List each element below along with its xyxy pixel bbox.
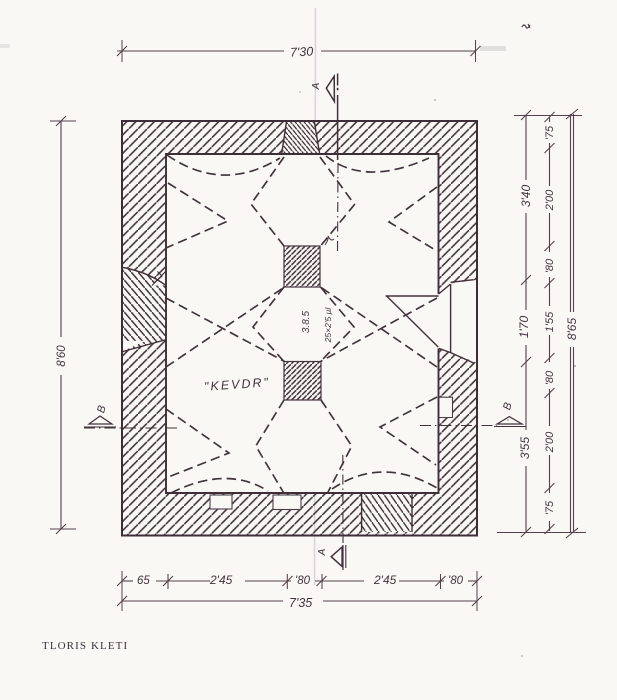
- svg-text:8'65: 8'65: [565, 318, 579, 341]
- svg-text:2'00: 2'00: [544, 189, 556, 211]
- svg-text:'80: '80: [544, 258, 556, 273]
- svg-text:2'00: 2'00: [544, 431, 556, 453]
- svg-text:'75: '75: [544, 500, 556, 515]
- svg-text:1'55: 1'55: [544, 311, 556, 332]
- svg-text:'80: '80: [448, 575, 464, 587]
- svg-text:3.8.5: 3.8.5: [301, 310, 312, 333]
- svg-text:1'70: 1'70: [517, 316, 531, 339]
- svg-text:B: B: [501, 401, 514, 411]
- svg-text:A: A: [317, 548, 328, 556]
- svg-text:65: 65: [137, 575, 150, 587]
- svg-text:3'55: 3'55: [518, 437, 532, 460]
- svg-text:25×2'5 µl: 25×2'5 µl: [323, 307, 333, 344]
- svg-text:7'35: 7'35: [289, 596, 312, 610]
- svg-text:'80: '80: [295, 575, 311, 587]
- svg-text:'80: '80: [544, 370, 556, 385]
- svg-text:8'60: 8'60: [56, 345, 68, 367]
- svg-text:'75: '75: [544, 125, 556, 140]
- svg-text:B: B: [95, 404, 108, 414]
- svg-text:2'45: 2'45: [373, 573, 397, 587]
- svg-text:7'30: 7'30: [290, 44, 314, 59]
- svg-text:2'45: 2'45: [209, 573, 233, 587]
- svg-text:A: A: [311, 82, 322, 90]
- svg-text:3'40: 3'40: [519, 185, 533, 208]
